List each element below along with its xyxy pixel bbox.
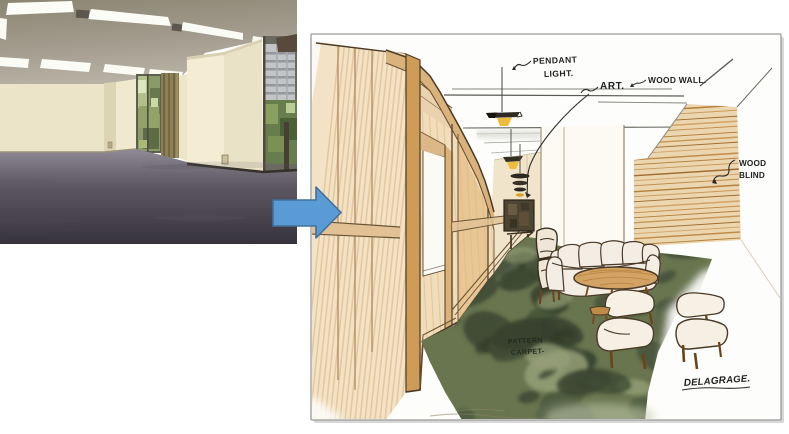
svg-text:WOOD WALL.: WOOD WALL. [648, 75, 706, 85]
svg-text:PENDANT: PENDANT [533, 54, 578, 66]
svg-text:LIGHT.: LIGHT. [544, 68, 574, 79]
svg-text:WOOD: WOOD [739, 159, 766, 168]
svg-text:PATTERN: PATTERN [508, 335, 543, 346]
svg-text:BLIND: BLIND [739, 171, 765, 180]
svg-text:CARPET-: CARPET- [511, 346, 545, 357]
svg-text:ART.: ART. [600, 81, 625, 92]
